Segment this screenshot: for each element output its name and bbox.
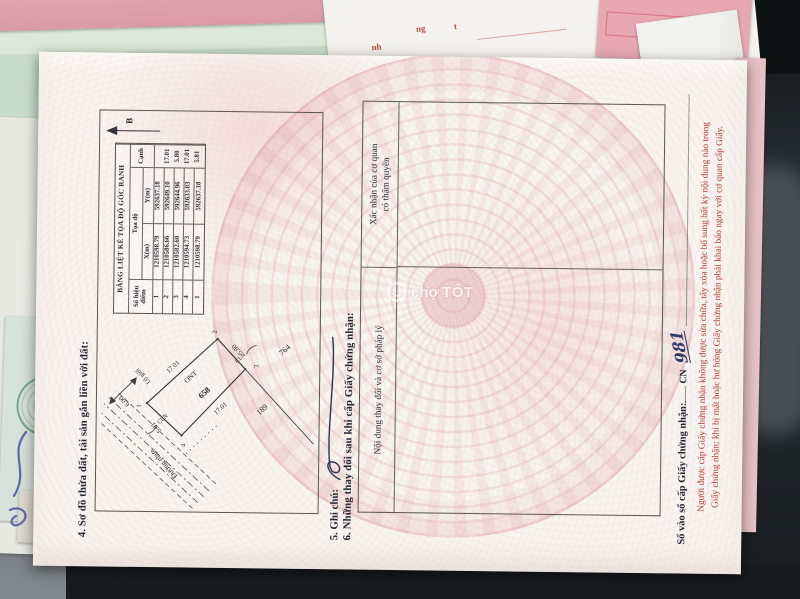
north-label: B xyxy=(124,118,134,124)
neighbor-parcel-label: 764 xyxy=(277,343,292,358)
edge-value: 5.80 xyxy=(172,150,182,162)
dotted-leader xyxy=(677,95,690,327)
col-header-x: X(m) xyxy=(142,223,154,279)
coordinate-table: BẢNG LIỆT KÊ TỌA ĐỘ GÓC RANH Số hiệu điể… xyxy=(113,143,206,315)
land-certificate-page: 4. Sơ đồ thửa đất, tài sản gắn liền với … xyxy=(33,52,747,575)
section5-title: 5. Ghi chú: xyxy=(328,489,341,540)
road-width-label: 6.00 xyxy=(117,394,131,409)
certificate-page-content: 4. Sơ đồ thửa đất, tài sản gắn liền với … xyxy=(36,55,744,572)
edge-length-34: 17.01 xyxy=(213,401,229,416)
edge-length-12: 17.01 xyxy=(165,360,181,375)
red-text-fragment: nh xyxy=(371,41,382,52)
red-text-fragment: ng xyxy=(415,23,425,34)
brand-text-pre: chợ xyxy=(411,284,439,301)
land-use-label: ONT xyxy=(183,369,200,385)
col-header-y: Y(m) xyxy=(143,167,155,223)
point-no-cell: 2 xyxy=(163,279,173,313)
y-cell: 592637.18 xyxy=(194,168,205,224)
column-divider xyxy=(398,267,663,271)
edge-value: 17.01 xyxy=(182,149,192,164)
col-header-change-content: Nội dung thay đổi và cơ sở pháp lý xyxy=(359,267,398,512)
point-no-cell: 1 xyxy=(193,280,203,314)
changes-table-body xyxy=(395,102,665,515)
chotot-logo-icon xyxy=(386,281,408,303)
red-rule-fragment xyxy=(477,29,567,40)
neighbor-parcel-label: 189 xyxy=(255,402,270,417)
point-no-cell: 4 xyxy=(183,279,193,313)
serial-prefix: CN xyxy=(678,369,689,383)
brand-text-main: TỐT xyxy=(442,284,473,301)
point-no-cell: 1 xyxy=(153,279,163,313)
col-header-authority-confirmation: Xác nhận của cơ quan có thẩm quyền xyxy=(362,102,400,267)
serial-label: Số vào sổ cấp Giấy chứng nhận: xyxy=(676,403,689,545)
x-cell: 1210598.79 xyxy=(193,224,204,280)
photo-scene: nh ng t 4. Sơ đồ thửa đất, tài sản gắn l… xyxy=(0,0,800,599)
corner-label-3: 3 xyxy=(253,364,260,368)
corner-label-2: 2 xyxy=(212,330,219,333)
setback-label: Lộ giới xyxy=(134,367,152,386)
road-name-label: Đường nhựa xyxy=(147,447,179,481)
chotot-logo-watermark: chợ TỐT xyxy=(386,281,473,303)
corner-label-1: 1 xyxy=(136,404,143,407)
col-header-point-no: Số hiệu điểm xyxy=(129,279,153,313)
y-cell: 592637.18 xyxy=(154,167,165,223)
dotted-leader xyxy=(676,387,686,403)
col-header-authority-line1: Xác nhận của cơ quan xyxy=(368,144,380,226)
handwritten-serial-number: 981 xyxy=(669,330,691,363)
y-cell: 592633.03 xyxy=(184,167,195,223)
edge-value: 17.01 xyxy=(162,149,172,164)
parcel-number-label: 658 xyxy=(197,385,212,400)
adjacent-land-label: CLN xyxy=(157,413,170,426)
y-cell: 592644.96 xyxy=(174,167,185,223)
section4-title: 4. Sơ đồ thửa đất, tài sản gắn liền với … xyxy=(76,341,90,537)
x-cell: 1210586.66 xyxy=(163,223,174,279)
parcel-sketch: 6.00 Lộ giới Đường nhựa 1 2 3 4 xyxy=(101,315,315,510)
north-arrow-icon: B xyxy=(104,113,164,140)
edge-value: 5.81 xyxy=(192,151,202,163)
x-cell: 1210582.60 xyxy=(173,223,184,279)
warning-text: Người được cấp Giấy chứng nhận không đượ… xyxy=(695,73,729,561)
red-text-fragment: t xyxy=(453,21,457,31)
edge-length-column: 17.01 5.80 17.01 5.81 xyxy=(155,144,205,168)
col-header-authority-line2: có thẩm quyền xyxy=(380,157,392,211)
x-cell: 1210598.79 xyxy=(153,223,164,279)
changes-table: Nội dung thay đổi và cơ sở pháp lý Xác n… xyxy=(358,101,666,517)
point-no-cell: 3 xyxy=(173,279,183,313)
col-header-edge: Cạnh xyxy=(131,144,155,167)
x-cell: 1210594.73 xyxy=(183,223,194,279)
corner-label-4: 4 xyxy=(180,443,187,447)
y-cell: 592649.10 xyxy=(164,167,175,223)
